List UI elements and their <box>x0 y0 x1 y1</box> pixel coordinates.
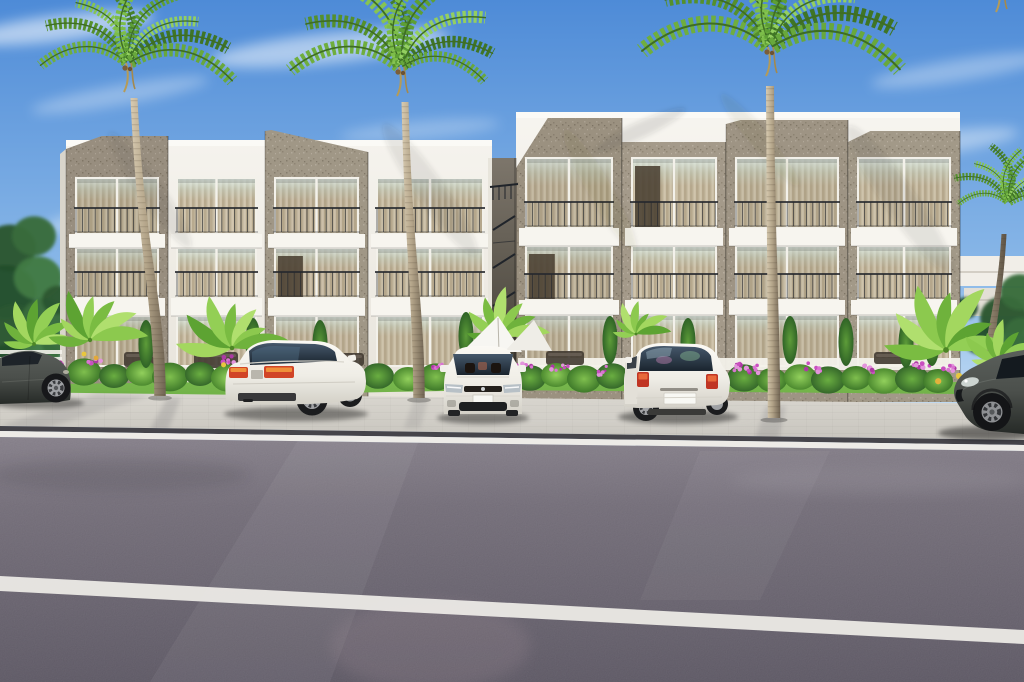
rear-diffuser <box>648 409 706 415</box>
side-mirror <box>625 357 632 363</box>
open-door <box>529 254 555 300</box>
lower-intake <box>459 402 507 411</box>
coconut <box>770 51 774 55</box>
balcony-slab <box>268 234 365 248</box>
hedge-bush <box>567 365 601 392</box>
car-shadow <box>224 407 368 421</box>
license-plate <box>251 370 263 379</box>
wheel <box>448 410 460 416</box>
coconut <box>401 71 405 75</box>
coconut <box>128 67 132 71</box>
asphalt-grain <box>0 437 1024 682</box>
coconut <box>764 49 769 54</box>
cypress-shrub <box>783 316 798 364</box>
balcony-slab <box>625 228 723 246</box>
road <box>0 437 1024 682</box>
flower-accent <box>221 362 226 367</box>
brand-badge <box>481 387 485 391</box>
flower-accent <box>935 378 941 384</box>
flower-accent <box>82 352 87 357</box>
license-plate <box>664 393 696 404</box>
hedge-bush <box>99 364 129 388</box>
headrest <box>465 363 475 373</box>
scene-root <box>0 0 1024 682</box>
wheel <box>506 410 518 416</box>
background-tree <box>12 216 56 256</box>
balcony-slab <box>625 300 723 315</box>
hatch-handle <box>660 388 698 391</box>
hedge-bush <box>841 366 871 390</box>
side-mirror <box>440 365 448 372</box>
side-mirror <box>518 365 526 372</box>
architectural-render <box>0 0 1024 682</box>
balcony-slab <box>729 228 845 246</box>
balcony-slab <box>268 298 365 316</box>
coconut <box>122 65 127 70</box>
coconut <box>395 69 400 74</box>
hedge-bush <box>362 363 394 389</box>
balcony-slab <box>519 300 619 315</box>
license-plate <box>473 395 493 403</box>
headlight <box>63 370 69 374</box>
headrest <box>491 363 501 373</box>
flower-accent <box>94 356 99 361</box>
hedge-bush <box>784 364 816 390</box>
hedge-bush <box>185 362 215 386</box>
cypress-shrub <box>839 318 854 366</box>
cypress-shrub <box>603 316 618 364</box>
balcony-slab <box>729 300 845 315</box>
balcony-slab <box>519 228 619 246</box>
